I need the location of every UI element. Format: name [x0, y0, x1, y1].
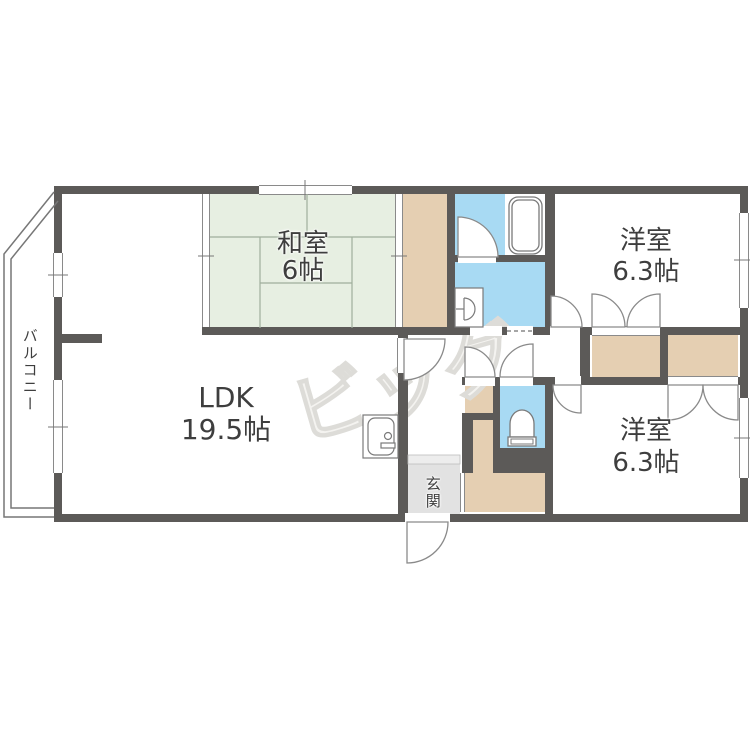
- door-swing-bedroom2: [553, 385, 581, 413]
- bedroom2-label: 洋室: [594, 418, 698, 445]
- washbasin-icon: [455, 288, 483, 327]
- door-swing-closet2-right: [703, 385, 738, 420]
- door-swing-hall-closet: [465, 347, 495, 377]
- floor-plan: ビッグ: [0, 0, 750, 750]
- bedroom2-size: 6.3帖: [594, 450, 698, 477]
- door-swing-entrance: [407, 522, 448, 563]
- washitsu-size: 6帖: [251, 258, 355, 285]
- bathtub-icon: [509, 197, 542, 254]
- linework-layer: [0, 0, 750, 750]
- washing-machine-icon: [363, 415, 398, 458]
- entrance-label: 玄関: [424, 468, 440, 518]
- toilet-icon: [508, 410, 536, 446]
- door-swing-closet1-left: [592, 294, 625, 327]
- ldk-label: LDK: [166, 383, 286, 412]
- ldk-size: 19.5帖: [166, 415, 286, 444]
- door-swing-toilet: [500, 344, 533, 377]
- door-swing-ldk: [404, 339, 445, 380]
- door-swing-closet2-left: [668, 385, 703, 420]
- entrance-step: [408, 455, 460, 464]
- bedroom1-label: 洋室: [594, 228, 698, 255]
- balcony-label: バルコニー: [21, 320, 37, 420]
- door-swing-bathroom: [458, 217, 498, 257]
- washitsu-label: 和室: [251, 231, 355, 258]
- bedroom1-size: 6.3帖: [594, 259, 698, 286]
- door-swing-bedroom1: [551, 296, 582, 327]
- door-swing-closet1-right: [627, 294, 660, 327]
